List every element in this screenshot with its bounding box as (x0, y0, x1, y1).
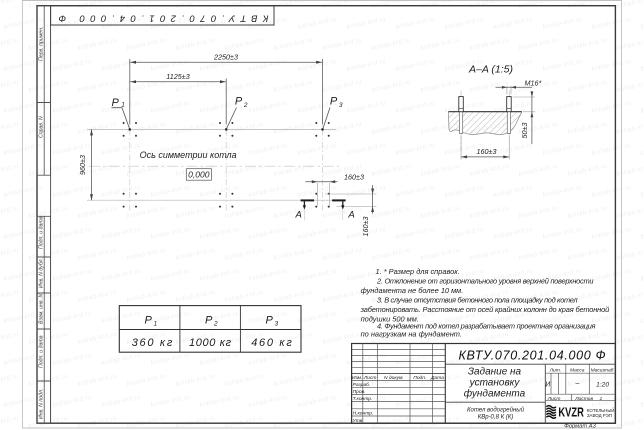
svg-text:по нагрузкам на фундамент.: по нагрузкам на фундамент. (361, 330, 462, 339)
svg-text:М16*: М16* (525, 79, 542, 88)
svg-text:kotlab-krd.ru: kotlab-krd.ru (248, 184, 289, 199)
svg-text:kotlab-krd.ru: kotlab-krd.ru (28, 79, 69, 94)
svg-text:kotlab-krd.ru: kotlab-krd.ru (297, 58, 338, 73)
svg-text:kotlab-krd.ru: kotlab-krd.ru (469, 0, 510, 10)
svg-text:kotlab-krd.ru: kotlab-krd.ru (346, 184, 387, 199)
svg-text:kotlab-krd.ru: kotlab-krd.ru (224, 289, 265, 304)
svg-text:kotlab-krd.ru: kotlab-krd.ru (591, 268, 632, 283)
svg-text:kotlab-krd.ru: kotlab-krd.ru (420, 0, 461, 10)
svg-text:kotlab-krd.ru: kotlab-krd.ru (126, 205, 167, 220)
svg-text:kotlab-krd.ru: kotlab-krd.ru (371, 121, 412, 136)
svg-text:kotlab-krd.ru: kotlab-krd.ru (567, 37, 608, 52)
svg-text:Справ. N: Справ. N (39, 116, 45, 138)
svg-text:kotlab-krd.ru: kotlab-krd.ru (444, 16, 485, 31)
svg-text:Подп.: Подп. (413, 375, 426, 381)
svg-text:kotlab-krd.ru: kotlab-krd.ru (224, 247, 265, 262)
svg-text:kotlab-krd.ru: kotlab-krd.ru (28, 205, 69, 220)
svg-text:kotlab-krd.ru: kotlab-krd.ru (101, 310, 142, 325)
svg-text:kotlab-krd.ru: kotlab-krd.ru (273, 37, 314, 52)
svg-text:КВр-0,8 К (К): КВр-0,8 К (К) (478, 415, 514, 421)
svg-text:kotlab-krd.ru: kotlab-krd.ru (175, 0, 216, 10)
svg-text:kotlab-krd.ru: kotlab-krd.ru (224, 121, 265, 136)
svg-text:kotlab-krd.ru: kotlab-krd.ru (371, 205, 412, 220)
svg-text:kotlab-krd.ru: kotlab-krd.ru (420, 247, 461, 262)
svg-text:kotlab-krd.ru: kotlab-krd.ru (224, 0, 265, 10)
svg-text:A–A (1:5): A–A (1:5) (468, 64, 513, 76)
svg-text:kotlab-krd.ru: kotlab-krd.ru (52, 310, 93, 325)
svg-text:1125±3: 1125±3 (166, 72, 189, 81)
svg-text:kotlab-krd.ru: kotlab-krd.ru (640, 184, 644, 199)
svg-text:kotlab-krd.ru: kotlab-krd.ru (591, 16, 632, 31)
svg-text:kotlab-krd.ru: kotlab-krd.ru (150, 226, 191, 241)
svg-text:kotlab-krd.ru: kotlab-krd.ru (77, 205, 118, 220)
svg-text:kotlab-krd.ru: kotlab-krd.ru (297, 142, 338, 157)
svg-text:Лист: Лист (363, 375, 377, 381)
svg-text:kotlab-krd.ru: kotlab-krd.ru (322, 79, 363, 94)
svg-text:kotlab-krd.ru: kotlab-krd.ru (150, 184, 191, 199)
svg-text:kotlab-krd.ru: kotlab-krd.ru (616, 373, 644, 388)
svg-text:kotlab-krd.ru: kotlab-krd.ru (199, 184, 240, 199)
svg-text:Н.контр.: Н.контр. (353, 411, 374, 417)
svg-text:kotlab-krd.ru: kotlab-krd.ru (542, 226, 583, 241)
svg-text:kotlab-krd.ru: kotlab-krd.ru (616, 289, 644, 304)
svg-text:kotlab-krd.ru: kotlab-krd.ru (28, 247, 69, 262)
svg-text:kotlab-krd.ru: kotlab-krd.ru (150, 394, 191, 409)
svg-text:2. Отклонение от горизонтальн: 2. Отклонение от горизонтального уровня … (376, 276, 594, 285)
svg-text:P: P (330, 96, 338, 108)
svg-text:Масштаб: Масштаб (591, 368, 614, 374)
svg-text:kotlab-krd.ru: kotlab-krd.ru (297, 352, 338, 367)
svg-text:kotlab-krd.ru: kotlab-krd.ru (175, 247, 216, 262)
svg-text:kotlab-krd.ru: kotlab-krd.ru (52, 352, 93, 367)
svg-text:kotlab-krd.ru: kotlab-krd.ru (52, 268, 93, 283)
svg-text:kotlab-krd.ru: kotlab-krd.ru (101, 142, 142, 157)
svg-text:kotlab-krd.ru: kotlab-krd.ru (273, 79, 314, 94)
svg-text:kotlab-krd.ru: kotlab-krd.ru (322, 0, 363, 10)
svg-text:kotlab-krd.ru: kotlab-krd.ru (175, 37, 216, 52)
svg-text:kotlab-krd.ru: kotlab-krd.ru (469, 163, 510, 178)
svg-text:kotlab-krd.ru: kotlab-krd.ru (52, 100, 93, 115)
svg-text:kotlab-krd.ru: kotlab-krd.ru (199, 268, 240, 283)
svg-text:kotlab-krd.ru: kotlab-krd.ru (371, 163, 412, 178)
svg-text:kotlab-krd.ru: kotlab-krd.ru (0, 0, 20, 10)
svg-text:kotlab-krd.ru: kotlab-krd.ru (640, 268, 644, 283)
svg-text:kotlab-krd.ru: kotlab-krd.ru (248, 352, 289, 367)
svg-text:kotlab-krd.ru: kotlab-krd.ru (542, 100, 583, 115)
svg-text:Перв. примен.: Перв. примен. (39, 27, 45, 61)
svg-text:kotlab-krd.ru: kotlab-krd.ru (126, 289, 167, 304)
svg-text:Масса: Масса (570, 368, 585, 374)
svg-text:Подп. и дата: Подп. и дата (39, 335, 45, 368)
svg-text:kotlab-krd.ru: kotlab-krd.ru (640, 394, 644, 409)
svg-text:kotlab-krd.ru: kotlab-krd.ru (567, 121, 608, 136)
svg-text:kotlab-krd.ru: kotlab-krd.ru (640, 16, 644, 31)
svg-text:kotlab-krd.ru: kotlab-krd.ru (150, 352, 191, 367)
svg-text:P: P (112, 97, 120, 109)
svg-text:kotlab-krd.ru: kotlab-krd.ru (640, 142, 644, 157)
svg-text:kotlab-krd.ru: kotlab-krd.ru (420, 37, 461, 52)
svg-text:kotlab-krd.ru: kotlab-krd.ru (101, 226, 142, 241)
svg-text:kotlab-krd.ru: kotlab-krd.ru (493, 142, 534, 157)
svg-text:160±3: 160±3 (361, 217, 370, 237)
svg-text:KVZR: KVZR (558, 405, 584, 420)
svg-text:Инв. N дубл.: Инв. N дубл. (39, 258, 45, 288)
svg-text:kotlab-krd.ru: kotlab-krd.ru (126, 163, 167, 178)
svg-text:kotlab-krd.ru: kotlab-krd.ru (346, 142, 387, 157)
svg-text:kotlab-krd.ru: kotlab-krd.ru (52, 226, 93, 241)
svg-text:1: 1 (154, 321, 158, 328)
svg-text:kotlab-krd.ru: kotlab-krd.ru (0, 247, 20, 262)
svg-text:kotlab-krd.ru: kotlab-krd.ru (493, 16, 534, 31)
svg-text:kotlab-krd.ru: kotlab-krd.ru (199, 352, 240, 367)
svg-text:kotlab-krd.ru: kotlab-krd.ru (28, 289, 69, 304)
svg-text:kotlab-krd.ru: kotlab-krd.ru (395, 142, 436, 157)
svg-text:kotlab-krd.ru: kotlab-krd.ru (567, 0, 608, 10)
svg-text:kotlab-krd.ru: kotlab-krd.ru (420, 79, 461, 94)
svg-text:kotlab-krd.ru: kotlab-krd.ru (101, 394, 142, 409)
svg-text:A: A (347, 210, 354, 221)
svg-text:kotlab-krd.ru: kotlab-krd.ru (420, 205, 461, 220)
svg-text:kotlab-krd.ru: kotlab-krd.ru (518, 373, 559, 388)
svg-text:kotlab-krd.ru: kotlab-krd.ru (28, 0, 69, 10)
svg-text:P: P (145, 315, 153, 327)
svg-text:kotlab-krd.ru: kotlab-krd.ru (224, 373, 265, 388)
svg-text:kotlab-krd.ru: kotlab-krd.ru (77, 79, 118, 94)
svg-text:kotlab-krd.ru: kotlab-krd.ru (273, 163, 314, 178)
svg-text:kotlab-krd.ru: kotlab-krd.ru (0, 415, 20, 430)
svg-text:kotlab-krd.ru: kotlab-krd.ru (77, 37, 118, 52)
svg-text:kotlab-krd.ru: kotlab-krd.ru (518, 37, 559, 52)
svg-text:kotlab-krd.ru: kotlab-krd.ru (199, 394, 240, 409)
svg-text:kotlab-krd.ru: kotlab-krd.ru (616, 37, 644, 52)
svg-text:kotlab-krd.ru: kotlab-krd.ru (518, 163, 559, 178)
svg-text:kotlab-krd.ru: kotlab-krd.ru (591, 394, 632, 409)
svg-text:50±3: 50±3 (520, 123, 529, 139)
svg-text:kotlab-krd.ru: kotlab-krd.ru (0, 289, 20, 304)
svg-text:kotlab-krd.ru: kotlab-krd.ru (175, 373, 216, 388)
svg-text:Пров.: Пров. (353, 389, 366, 395)
svg-text:P: P (235, 96, 243, 108)
svg-text:kotlab-krd.ru: kotlab-krd.ru (371, 79, 412, 94)
svg-text:kotlab-krd.ru: kotlab-krd.ru (273, 0, 314, 10)
svg-text:kotlab-krd.ru: kotlab-krd.ru (567, 79, 608, 94)
svg-text:160±3: 160±3 (344, 172, 364, 181)
svg-text:kotlab-krd.ru: kotlab-krd.ru (77, 0, 118, 10)
svg-text:0,000: 0,000 (188, 169, 210, 179)
svg-text:kotlab-krd.ru: kotlab-krd.ru (493, 226, 534, 241)
svg-text:kotlab-krd.ru: kotlab-krd.ru (616, 79, 644, 94)
svg-text:Листов: Листов (574, 396, 593, 402)
svg-text:kotlab-krd.ru: kotlab-krd.ru (52, 394, 93, 409)
svg-text:kotlab-krd.ru: kotlab-krd.ru (0, 331, 20, 346)
svg-text:kotlab-krd.ru: kotlab-krd.ru (591, 184, 632, 199)
svg-text:kotlab-krd.ru: kotlab-krd.ru (591, 58, 632, 73)
svg-text:kotlab-krd.ru: kotlab-krd.ru (640, 310, 644, 325)
svg-text:kotlab-krd.ru: kotlab-krd.ru (273, 121, 314, 136)
svg-text:kotlab-krd.ru: kotlab-krd.ru (224, 37, 265, 52)
svg-text:kotlab-krd.ru: kotlab-krd.ru (567, 247, 608, 262)
svg-text:kotlab-krd.ru: kotlab-krd.ru (52, 58, 93, 73)
svg-text:3: 3 (339, 102, 343, 109)
svg-text:Формат А3: Формат А3 (564, 424, 596, 430)
svg-text:kotlab-krd.ru: kotlab-krd.ru (52, 142, 93, 157)
svg-text:Инв. N подл.: Инв. N подл. (39, 389, 45, 419)
svg-text:kotlab-krd.ru: kotlab-krd.ru (150, 100, 191, 115)
svg-text:kotlab-krd.ru: kotlab-krd.ru (591, 142, 632, 157)
svg-text:kotlab-krd.ru: kotlab-krd.ru (101, 352, 142, 367)
svg-text:kotlab-krd.ru: kotlab-krd.ru (346, 58, 387, 73)
svg-text:kotlab-krd.ru: kotlab-krd.ru (616, 205, 644, 220)
svg-text:kotlab-krd.ru: kotlab-krd.ru (0, 121, 20, 136)
svg-text:kotlab-krd.ru: kotlab-krd.ru (150, 58, 191, 73)
svg-text:kotlab-krd.ru: kotlab-krd.ru (101, 58, 142, 73)
svg-text:Утв.: Утв. (353, 418, 364, 424)
svg-text:kotlab-krd.ru: kotlab-krd.ru (126, 37, 167, 52)
svg-text:Взам. инв. N: Взам. инв. N (39, 294, 45, 324)
svg-text:kotlab-krd.ru: kotlab-krd.ru (616, 163, 644, 178)
svg-text:kotlab-krd.ru: kotlab-krd.ru (0, 373, 20, 388)
svg-text:фундамента: фундамента (464, 388, 526, 400)
svg-text:kotlab-krd.ru: kotlab-krd.ru (444, 184, 485, 199)
svg-text:установку: установку (469, 377, 521, 388)
svg-text:kotlab-krd.ru: kotlab-krd.ru (395, 352, 436, 367)
svg-text:kotlab-krd.ru: kotlab-krd.ru (616, 121, 644, 136)
svg-text:kotlab-krd.ru: kotlab-krd.ru (640, 226, 644, 241)
svg-text:kotlab-krd.ru: kotlab-krd.ru (616, 247, 644, 262)
svg-text:kotlab-krd.ru: kotlab-krd.ru (395, 16, 436, 31)
svg-text:kotlab-krd.ru: kotlab-krd.ru (28, 121, 69, 136)
svg-text:kotlab-krd.ru: kotlab-krd.ru (101, 184, 142, 199)
svg-text:kotlab-krd.ru: kotlab-krd.ru (542, 16, 583, 31)
svg-text:kotlab-krd.ru: kotlab-krd.ru (224, 205, 265, 220)
svg-text:kotlab-krd.ru: kotlab-krd.ru (126, 79, 167, 94)
svg-text:kotlab-krd.ru: kotlab-krd.ru (28, 37, 69, 52)
svg-text:kotlab-krd.ru: kotlab-krd.ru (567, 163, 608, 178)
svg-text:kotlab-krd.ru: kotlab-krd.ru (346, 16, 387, 31)
svg-text:Подп. и дата: Подп. и дата (39, 216, 45, 249)
svg-text:1:20: 1:20 (596, 382, 609, 389)
svg-text:kotlab-krd.ru: kotlab-krd.ru (175, 289, 216, 304)
svg-text:kotlab-krd.ru: kotlab-krd.ru (224, 79, 265, 94)
svg-text:Ось симметрии котла: Ось симметрии котла (140, 150, 237, 160)
svg-text:kotlab-krd.ru: kotlab-krd.ru (248, 226, 289, 241)
svg-text:kotlab-krd.ru: kotlab-krd.ru (542, 142, 583, 157)
svg-text:kotlab-krd.ru: kotlab-krd.ru (273, 205, 314, 220)
svg-text:kotlab-krd.ru: kotlab-krd.ru (0, 163, 20, 178)
svg-text:kotlab-krd.ru: kotlab-krd.ru (248, 142, 289, 157)
svg-text:N докум.: N докум. (384, 375, 404, 381)
svg-text:kotlab-krd.ru: kotlab-krd.ru (175, 79, 216, 94)
svg-text:kotlab-krd.ru: kotlab-krd.ru (371, 37, 412, 52)
svg-text:2: 2 (213, 321, 218, 328)
svg-text:kotlab-krd.ru: kotlab-krd.ru (126, 373, 167, 388)
svg-text:–: – (575, 380, 580, 387)
svg-text:3: 3 (275, 321, 279, 328)
svg-text:kotlab-krd.ru: kotlab-krd.ru (297, 226, 338, 241)
svg-text:kotlab-krd.ru: kotlab-krd.ru (322, 289, 363, 304)
svg-text:kotlab-krd.ru: kotlab-krd.ru (77, 373, 118, 388)
svg-text:kotlab-krd.ru: kotlab-krd.ru (248, 58, 289, 73)
svg-text:забетонировать. Расстояние от: забетонировать. Расстояние от осей крайн… (360, 305, 610, 314)
svg-text:A: A (295, 210, 302, 221)
svg-text:kotlab-krd.ru: kotlab-krd.ru (297, 268, 338, 283)
svg-text:kotlab-krd.ru: kotlab-krd.ru (199, 100, 240, 115)
svg-text:P: P (205, 315, 213, 327)
svg-text:kotlab-krd.ru: kotlab-krd.ru (640, 352, 644, 367)
svg-text:kotlab-krd.ru: kotlab-krd.ru (616, 0, 644, 10)
svg-text:P: P (266, 315, 274, 327)
svg-text:kotlab-krd.ru: kotlab-krd.ru (395, 184, 436, 199)
svg-text:Изм.: Изм. (352, 375, 362, 381)
svg-text:kotlab-krd.ru: kotlab-krd.ru (567, 205, 608, 220)
svg-text:kotlab-krd.ru: kotlab-krd.ru (77, 121, 118, 136)
svg-text:2: 2 (243, 102, 248, 109)
svg-text:kotlab-krd.ru: kotlab-krd.ru (28, 331, 69, 346)
svg-text:kotlab-krd.ru: kotlab-krd.ru (297, 394, 338, 409)
svg-text:kotlab-krd.ru: kotlab-krd.ru (0, 79, 20, 94)
svg-text:kotlab-krd.ru: kotlab-krd.ru (591, 226, 632, 241)
svg-text:kotlab-krd.ru: kotlab-krd.ru (395, 100, 436, 115)
svg-text:160±3: 160±3 (477, 147, 497, 156)
svg-text:kotlab-krd.ru: kotlab-krd.ru (28, 163, 69, 178)
svg-text:kotlab-krd.ru: kotlab-krd.ru (591, 100, 632, 115)
svg-text:1: 1 (600, 396, 603, 402)
svg-text:Т.контр.: Т.контр. (353, 396, 373, 402)
svg-text:kotlab-krd.ru: kotlab-krd.ru (273, 373, 314, 388)
svg-text:kotlab-krd.ru: kotlab-krd.ru (444, 226, 485, 241)
svg-text:kotlab-krd.ru: kotlab-krd.ru (126, 121, 167, 136)
svg-text:3. В случае отсутствия бетонн: 3. В случае отсутствия бетонного пола пл… (377, 295, 578, 304)
svg-text:kotlab-krd.ru: kotlab-krd.ru (0, 37, 20, 52)
svg-text:kotlab-krd.ru: kotlab-krd.ru (518, 0, 559, 10)
svg-text:kotlab-krd.ru: kotlab-krd.ru (518, 247, 559, 262)
svg-text:2250±3: 2250±3 (213, 53, 238, 62)
svg-text:kotlab-krd.ru: kotlab-krd.ru (322, 247, 363, 262)
svg-text:960±3: 960±3 (78, 155, 87, 175)
svg-text:kotlab-krd.ru: kotlab-krd.ru (273, 247, 314, 262)
svg-text:КВТУ.070.201.04.000 Ф: КВТУ.070.201.04.000 Ф (459, 348, 606, 362)
svg-text:kotlab-krd.ru: kotlab-krd.ru (126, 0, 167, 10)
svg-text:kotlab-krd.ru: kotlab-krd.ru (297, 310, 338, 325)
svg-text:kotlab-krd.ru: kotlab-krd.ru (395, 58, 436, 73)
svg-text:kotlab-krd.ru: kotlab-krd.ru (248, 394, 289, 409)
svg-text:kotlab-krd.ru: kotlab-krd.ru (175, 205, 216, 220)
svg-text:kotlab-krd.ru: kotlab-krd.ru (150, 268, 191, 283)
svg-text:kotlab-krd.ru: kotlab-krd.ru (420, 163, 461, 178)
svg-text:kotlab-krd.ru: kotlab-krd.ru (640, 100, 644, 115)
svg-text:Лист: Лист (547, 396, 561, 402)
svg-text:Лит.: Лит. (549, 368, 561, 374)
svg-text:kotlab-krd.ru: kotlab-krd.ru (248, 100, 289, 115)
svg-text:kotlab-krd.ru: kotlab-krd.ru (77, 331, 118, 346)
svg-text:И: И (545, 382, 551, 389)
svg-text:kotlab-krd.ru: kotlab-krd.ru (371, 247, 412, 262)
svg-text:kotlab-krd.ru: kotlab-krd.ru (469, 205, 510, 220)
svg-text:Задание на: Задание на (468, 366, 522, 377)
svg-text:kotlab-krd.ru: kotlab-krd.ru (273, 289, 314, 304)
svg-text:kotlab-krd.ru: kotlab-krd.ru (616, 331, 644, 346)
svg-text:kotlab-krd.ru: kotlab-krd.ru (297, 16, 338, 31)
svg-text:Дата: Дата (430, 375, 444, 381)
svg-text:kotlab-krd.ru: kotlab-krd.ru (126, 247, 167, 262)
svg-text:kotlab-krd.ru: kotlab-krd.ru (322, 37, 363, 52)
svg-text:kotlab-krd.ru: kotlab-krd.ru (224, 163, 265, 178)
svg-text:kotlab-krd.ru: kotlab-krd.ru (395, 226, 436, 241)
svg-text:kotlab-krd.ru: kotlab-krd.ru (77, 289, 118, 304)
svg-text:1: 1 (121, 102, 125, 109)
svg-text:kotlab-krd.ru: kotlab-krd.ru (248, 268, 289, 283)
svg-text:kotlab-krd.ru: kotlab-krd.ru (640, 58, 644, 73)
svg-text:kotlab-krd.ru: kotlab-krd.ru (28, 373, 69, 388)
svg-text:kotlab-krd.ru: kotlab-krd.ru (469, 37, 510, 52)
svg-text:kotlab-krd.ru: kotlab-krd.ru (542, 184, 583, 199)
svg-text:kotlab-krd.ru: kotlab-krd.ru (493, 184, 534, 199)
svg-text:ЗАВОД РЭП: ЗАВОД РЭП (587, 413, 612, 418)
svg-text:kotlab-krd.ru: kotlab-krd.ru (518, 205, 559, 220)
svg-text:1. * Размер для справок.: 1. * Размер для справок. (376, 267, 460, 276)
svg-text:kotlab-krd.ru: kotlab-krd.ru (101, 268, 142, 283)
svg-text:kotlab-krd.ru: kotlab-krd.ru (469, 247, 510, 262)
svg-text:kotlab-krd.ru: kotlab-krd.ru (52, 184, 93, 199)
svg-text:kotlab-krd.ru: kotlab-krd.ru (77, 247, 118, 262)
svg-text:Разраб.: Разраб. (353, 382, 371, 388)
svg-text:1000 кг: 1000 кг (189, 337, 232, 349)
svg-text:kotlab-krd.ru: kotlab-krd.ru (199, 226, 240, 241)
svg-text:Котел водогрейный: Котел водогрейный (467, 407, 525, 414)
svg-text:kotlab-krd.ru: kotlab-krd.ru (346, 100, 387, 115)
svg-text:kotlab-krd.ru: kotlab-krd.ru (542, 58, 583, 73)
svg-text:kotlab-krd.ru: kotlab-krd.ru (371, 0, 412, 10)
svg-text:kotlab-krd.ru: kotlab-krd.ru (0, 205, 20, 220)
svg-text:kotlab-krd.ru: kotlab-krd.ru (175, 121, 216, 136)
svg-text:фундамента не более 10 мм.: фундамента не более 10 мм. (361, 286, 464, 295)
